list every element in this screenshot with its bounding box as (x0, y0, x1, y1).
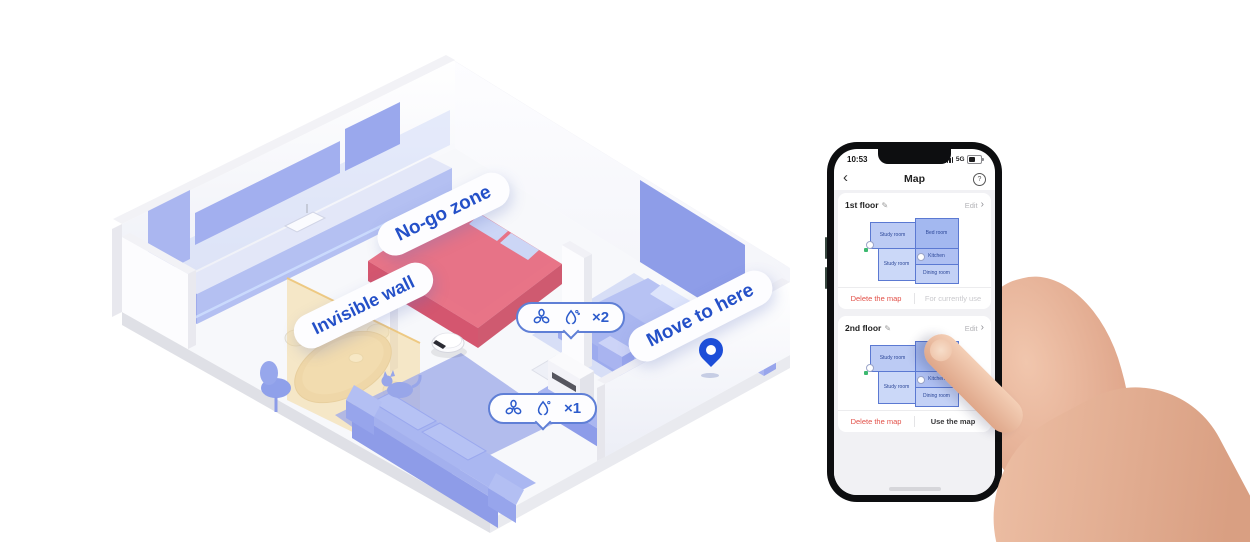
floor-title: 1st floor (845, 200, 879, 210)
map-room-dining[interactable]: Dining room (915, 387, 959, 407)
map-room-dining[interactable]: Dining room (915, 264, 959, 284)
floor-card-1: 1st floor ✎ Edit › Study room Study room… (838, 193, 991, 309)
page-title: Map (904, 173, 925, 185)
home-indicator (889, 487, 941, 491)
chevron-right-icon[interactable]: › (981, 323, 984, 333)
map-room-study-bottom[interactable]: Study room (878, 371, 916, 404)
map-list: 1st floor ✎ Edit › Study room Study room… (834, 190, 995, 495)
rename-pencil-icon[interactable]: ✎ (882, 201, 889, 210)
chevron-right-icon[interactable]: › (981, 200, 984, 210)
room-illustration (100, 40, 800, 535)
floor-title: 2nd floor (845, 323, 881, 333)
dock-marker-icon (917, 253, 925, 261)
map-room-study-top[interactable]: Study room (870, 222, 916, 249)
rename-pencil-icon[interactable]: ✎ (884, 324, 891, 333)
clock: 10:53 (847, 155, 867, 164)
volume-button (825, 237, 827, 259)
repeat-count: ×1 (564, 400, 581, 417)
fan-icon (532, 308, 551, 327)
map-room-study-top[interactable]: Study room (870, 345, 916, 372)
page: No-go zone Invisible wall Move to here ×… (0, 0, 1250, 542)
clean-settings-badge-bedroom: ×2 (516, 302, 625, 333)
clean-settings-badge-living: ×1 (488, 393, 597, 424)
volume-button (825, 267, 827, 289)
nav-bar: ‹ Map ? (834, 168, 995, 190)
pin-shadow (701, 373, 719, 378)
thumb-nail (925, 335, 956, 366)
phone-screen: 10:53 5G ‹ Map ? 1st floor (834, 149, 995, 495)
network-label: 5G (956, 156, 965, 163)
back-button[interactable]: ‹ (843, 168, 848, 188)
green-pin-icon (864, 248, 868, 252)
phone: 10:53 5G ‹ Map ? 1st floor (827, 142, 1002, 502)
battery-icon (967, 155, 982, 164)
fan-icon (504, 399, 523, 418)
edit-button[interactable]: Edit (965, 324, 978, 333)
delete-map-button[interactable]: Delete the map (838, 417, 914, 426)
delete-map-button[interactable]: Delete the map (838, 294, 914, 303)
help-icon[interactable]: ? (973, 173, 986, 186)
floor-map[interactable]: Study room Study room Bed room Kitchen D… (845, 213, 984, 287)
dock-marker-icon (917, 376, 925, 384)
use-map-button[interactable]: Use the map (915, 417, 991, 426)
map-room-bedroom[interactable]: Bed room (915, 218, 959, 249)
map-room-study-bottom[interactable]: Study room (878, 248, 916, 281)
currently-use-button[interactable]: For currently use (915, 294, 991, 303)
green-pin-icon (864, 371, 868, 375)
repeat-count: ×2 (592, 309, 609, 326)
phone-notch (878, 149, 951, 164)
edit-button[interactable]: Edit (965, 201, 978, 210)
